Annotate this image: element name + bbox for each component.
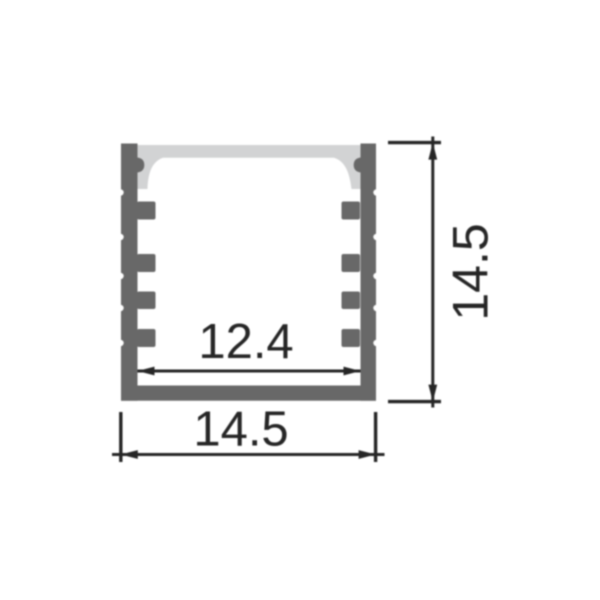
svg-text:12.4: 12.4 xyxy=(198,315,293,369)
svg-text:14.5: 14.5 xyxy=(193,403,288,457)
svg-text:14.5: 14.5 xyxy=(443,223,499,320)
